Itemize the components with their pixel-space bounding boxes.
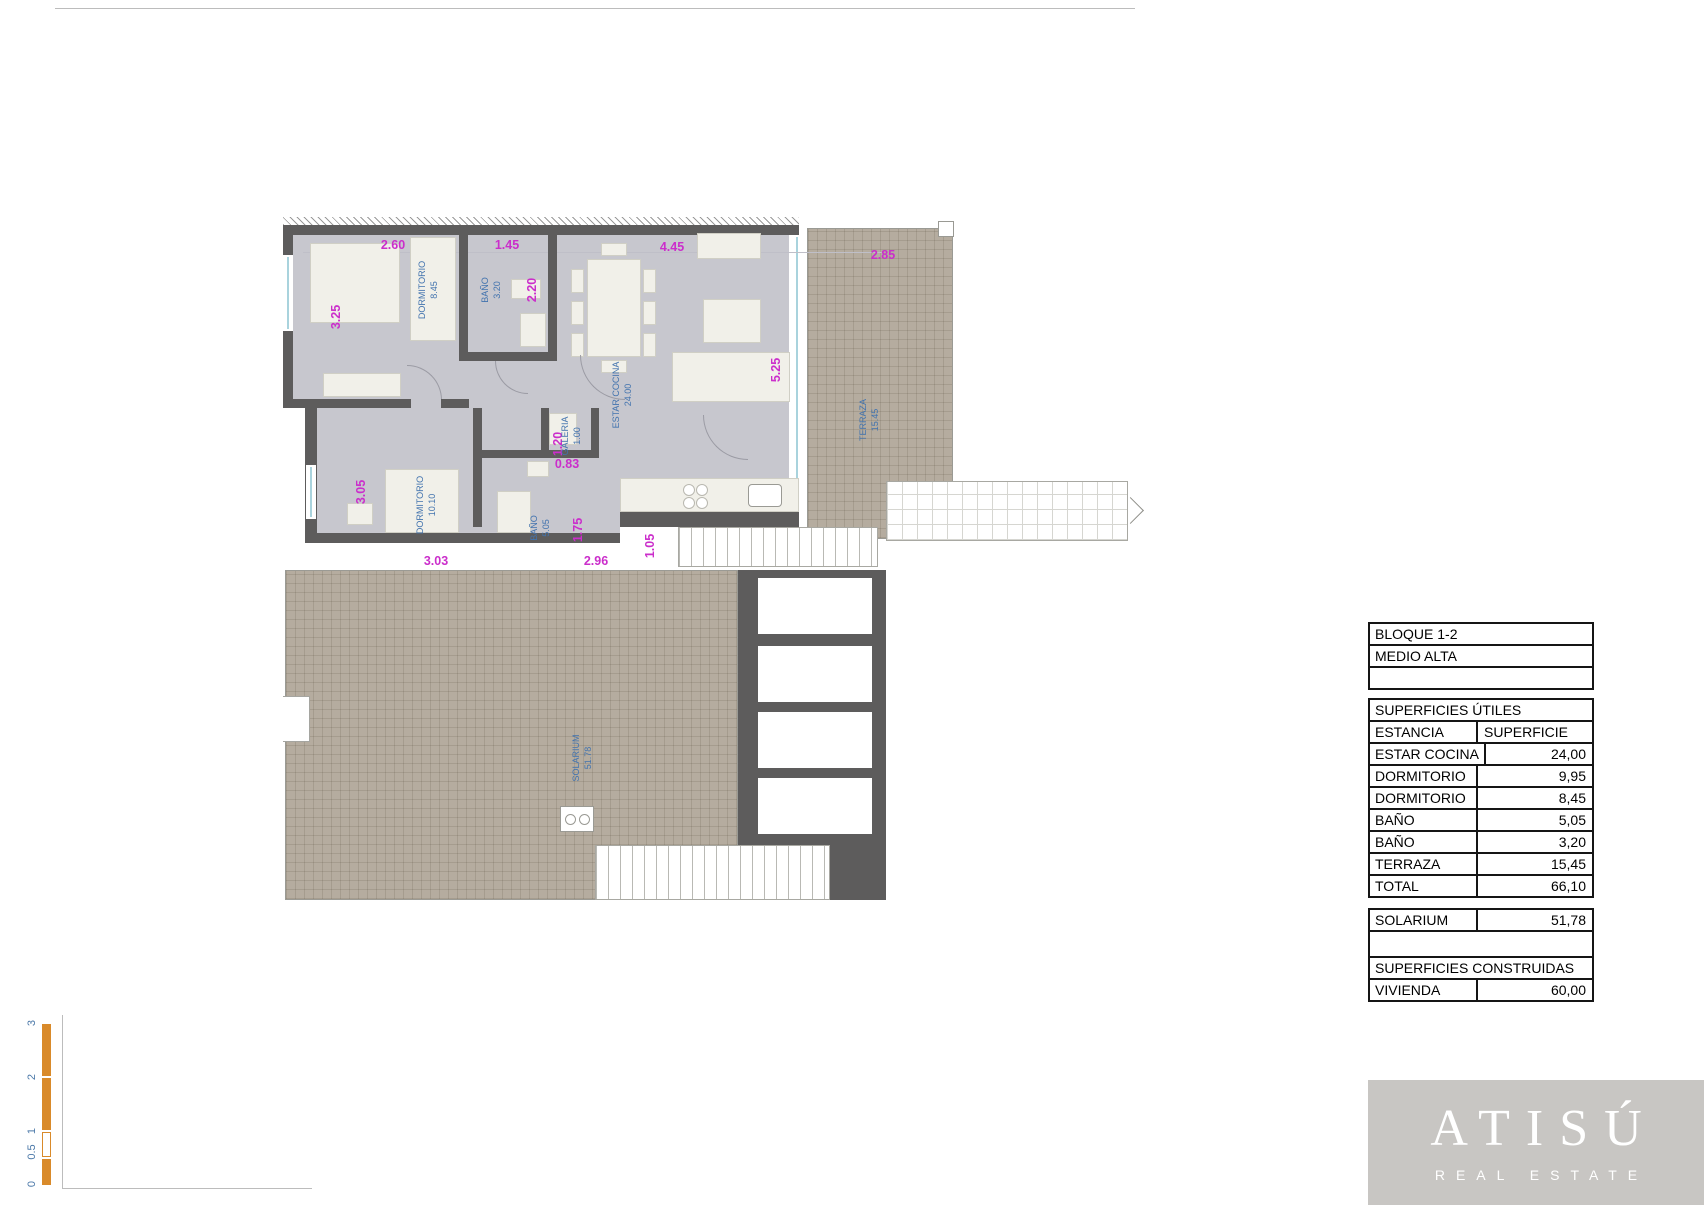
- cell-label: ESTAR COCINA: [1370, 744, 1486, 764]
- scale-segment: [42, 1078, 51, 1130]
- cell-label: BLOQUE 1-2: [1370, 626, 1462, 642]
- shaft-opening: [758, 578, 872, 634]
- cell-value: 15,45: [1478, 856, 1592, 872]
- row-terraza: TERRAZA 15,45: [1368, 852, 1594, 876]
- row-bano-1: BAÑO 5,05: [1368, 808, 1594, 832]
- row-estar-cocina: ESTAR COCINA 24,00: [1368, 742, 1594, 766]
- stove-icon: [696, 484, 708, 496]
- cell-label: MEDIO ALTA: [1370, 648, 1462, 664]
- stove-icon: [683, 484, 695, 496]
- cell-value: 60,00: [1478, 982, 1592, 998]
- row-bloque: BLOQUE 1-2: [1368, 622, 1594, 646]
- cell-label: TOTAL: [1370, 876, 1478, 896]
- room-label-solarium: SOLARIUM 51.78: [570, 734, 594, 781]
- dim-living-height: 5.25: [769, 358, 783, 382]
- row-bano-2: BAÑO 3,20: [1368, 830, 1594, 854]
- room-label-dorm1: DORMITORIO 8.45: [416, 261, 440, 319]
- shaft-opening: [758, 778, 872, 834]
- cell-label: VIVIENDA: [1370, 980, 1478, 1000]
- row-planta: MEDIO ALTA: [1368, 644, 1594, 668]
- cell-label: TERRAZA: [1370, 854, 1478, 874]
- wall-dorm2-right: [473, 408, 482, 527]
- sink-bath2: [527, 461, 549, 477]
- cell-label: ESTANCIA: [1370, 722, 1478, 742]
- cell-label: DORMITORIO: [1370, 766, 1478, 786]
- dim-dorm2-width: 3.03: [424, 554, 448, 568]
- nightstand-dorm2: [347, 503, 373, 525]
- cell-value: 8,45: [1478, 790, 1592, 806]
- vent-circle-icon: [565, 814, 576, 825]
- wall-bath1-living: [548, 235, 557, 361]
- dim-bath1-height: 2.20: [525, 278, 539, 302]
- cell-label: SUPERFICIES CONSTRUIDAS: [1370, 960, 1579, 976]
- chair: [601, 243, 627, 256]
- dresser-dorm1: [323, 373, 401, 397]
- row-vivienda: VIVIENDA 60,00: [1368, 978, 1594, 1002]
- cell-value: 5,05: [1478, 812, 1592, 828]
- cell-value: 51,78: [1478, 912, 1592, 928]
- toilet-bath1: [520, 313, 546, 347]
- stairs-upper: [678, 527, 878, 567]
- cell-value: 24,00: [1486, 746, 1592, 762]
- dim-living-width: 4.45: [660, 240, 684, 254]
- cell-label: BAÑO: [1370, 832, 1478, 852]
- room-label-bath1: BAÑO 3.20: [479, 277, 503, 303]
- room-label-bath2: BAÑO 5.05: [528, 515, 552, 541]
- shaft-opening: [758, 712, 872, 768]
- upper-floor-plan: 2.60 1.45 4.45 2.85 3.25 2.20 5.25 3.05 …: [283, 203, 1135, 583]
- stairs-solarium: [595, 845, 830, 900]
- row-dormitorio-1: DORMITORIO 9,95: [1368, 764, 1594, 788]
- brand-name: ATISÚ: [1414, 1103, 1657, 1155]
- access-corridor: [886, 481, 1128, 541]
- row-solarium: SOLARIUM 51,78: [1368, 908, 1594, 932]
- frame-bottom-line: [62, 1188, 312, 1189]
- stove-icon: [683, 497, 695, 509]
- cell-label: SUPERFICIES ÚTILES: [1370, 702, 1526, 718]
- scale-segment: [42, 1159, 51, 1185]
- table-gap: [1368, 690, 1594, 698]
- cell-label: DORMITORIO: [1370, 788, 1478, 808]
- scale-segment: [42, 1132, 51, 1157]
- cell-label: BAÑO: [1370, 810, 1478, 830]
- chair: [643, 269, 656, 293]
- surface-table: BLOQUE 1-2 MEDIO ALTA SUPERFICIES ÚTILES…: [1368, 622, 1594, 1002]
- wall-bath2-top: [482, 450, 542, 458]
- row-dormitorio-2: DORMITORIO 8,45: [1368, 786, 1594, 810]
- solarium-plan: SOLARIUM 51.78: [283, 568, 889, 908]
- wall-dorm1-bath1: [459, 235, 468, 361]
- shaft-opening: [758, 646, 872, 702]
- scale-label: 0.5: [26, 1144, 38, 1159]
- wall-kitchen-bottom: [620, 512, 799, 527]
- frame-left-line: [62, 1015, 63, 1188]
- row-superficies-utiles: SUPERFICIES ÚTILES: [1368, 698, 1594, 722]
- dim-bath2-height: 1.75: [571, 518, 585, 542]
- bed-dorm1: [310, 243, 400, 323]
- scale-label: 0: [26, 1181, 38, 1187]
- wall-hatch: [283, 217, 799, 225]
- row-superficies-construidas: SUPERFICIES CONSTRUIDAS: [1368, 956, 1594, 980]
- row-header: ESTANCIA SUPERFICIE: [1368, 720, 1594, 744]
- scale-segment: [42, 1024, 51, 1076]
- wall-dorm1-bottom-a: [293, 399, 411, 408]
- scale-label: 3: [26, 1020, 38, 1026]
- terrace-pillar: [938, 221, 954, 237]
- room-label-dorm2: DORMITORIO 10.10: [414, 476, 438, 534]
- brand-tagline: REAL ESTATE: [1424, 1167, 1648, 1183]
- stove-icon: [696, 497, 708, 509]
- chair: [571, 301, 584, 325]
- coffee-table: [703, 299, 761, 343]
- dim-dorm1-width: 2.60: [381, 238, 405, 252]
- dim-galeria-width: 0.83: [555, 457, 579, 471]
- sideboard: [697, 233, 761, 259]
- dining-table: [587, 259, 641, 357]
- chair: [571, 333, 584, 357]
- cell-value: 9,95: [1478, 768, 1592, 784]
- brand-logo: ATISÚ REAL ESTATE: [1368, 1080, 1704, 1205]
- wall-dorm1-bottom-b: [441, 399, 469, 408]
- chair: [643, 301, 656, 325]
- room-label-living: ESTAR COCINA 24.00: [610, 362, 634, 429]
- dim-dorm2-height: 3.05: [354, 480, 368, 504]
- dorm2-window-glass: [310, 467, 312, 517]
- wall-bath1-bottom: [459, 352, 557, 361]
- sink-icon: [748, 484, 782, 507]
- row-empty: [1368, 930, 1594, 958]
- table-gap: [1368, 898, 1594, 908]
- scale-label: 2: [26, 1074, 38, 1080]
- dim-bath1-width: 1.45: [495, 238, 519, 252]
- solarium-notch: [283, 696, 310, 742]
- cell-value: 3,20: [1478, 834, 1592, 850]
- cell-value: 66,10: [1478, 878, 1592, 894]
- chair: [643, 333, 656, 357]
- plan-sheet: 2.60 1.45 4.45 2.85 3.25 2.20 5.25 3.05 …: [0, 0, 1704, 1205]
- footprint-cutout: [283, 408, 305, 543]
- dim-dorm1-height: 3.25: [329, 305, 343, 329]
- skylight-vent: [560, 806, 594, 832]
- dim-hall-width: 1.05: [643, 534, 657, 558]
- row-total: TOTAL 66,10: [1368, 874, 1594, 898]
- vent-circle-icon: [579, 814, 590, 825]
- frame-top-line: [55, 8, 1135, 9]
- room-label-terrace: TERRAZA 15.45: [857, 399, 881, 441]
- dorm1-window-glass: [287, 257, 289, 329]
- row-empty: [1368, 666, 1594, 690]
- cell-label: SOLARIUM: [1370, 910, 1478, 930]
- scale-label: 1: [26, 1128, 38, 1134]
- chair: [571, 269, 584, 293]
- dim-terrace-width: 2.85: [871, 248, 895, 262]
- room-label-galeria: GALERIA 1.00: [559, 416, 583, 455]
- bathtub-bath2: [497, 491, 531, 533]
- cell-value: SUPERFICIE: [1478, 724, 1592, 740]
- dim-bath2-width: 2.96: [584, 554, 608, 568]
